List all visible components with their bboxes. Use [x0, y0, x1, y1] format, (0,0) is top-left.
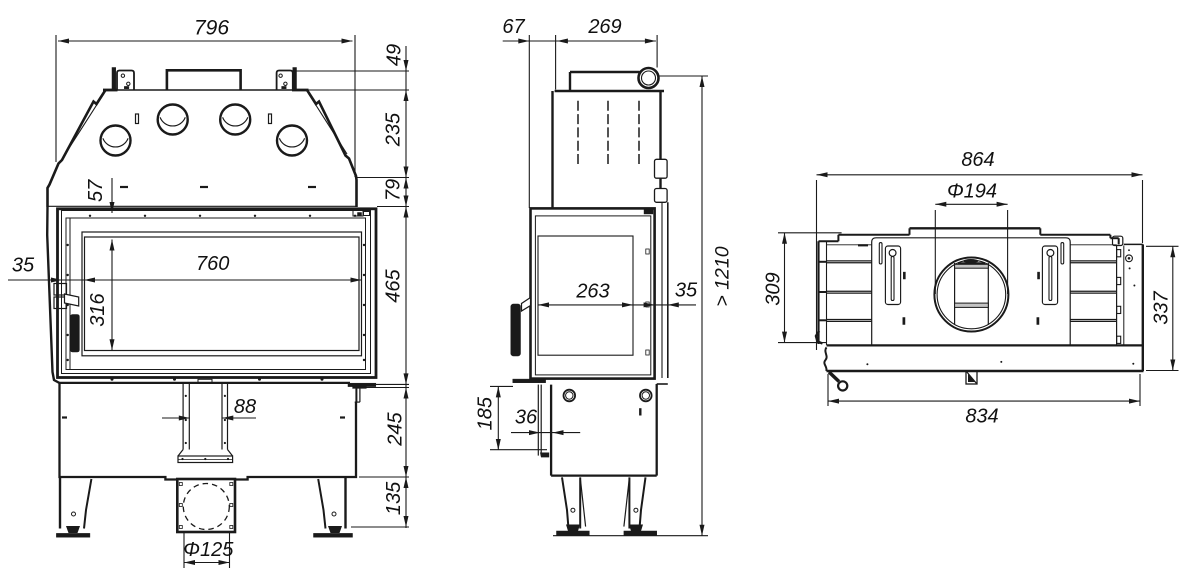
svg-text:79: 79	[382, 179, 404, 201]
svg-text:135: 135	[383, 481, 405, 515]
svg-text:> 1210: > 1210	[711, 246, 733, 306]
svg-text:834: 834	[965, 405, 998, 427]
svg-text:269: 269	[587, 16, 621, 38]
svg-text:57: 57	[85, 179, 107, 202]
svg-text:263: 263	[575, 280, 609, 302]
svg-text:Φ194: Φ194	[947, 180, 997, 202]
svg-text:760: 760	[196, 253, 229, 275]
svg-text:465: 465	[382, 268, 404, 302]
svg-text:337: 337	[1150, 290, 1172, 324]
svg-text:309: 309	[762, 272, 784, 305]
svg-text:88: 88	[234, 396, 256, 418]
svg-text:67: 67	[502, 16, 525, 38]
svg-text:316: 316	[87, 292, 109, 326]
svg-text:49: 49	[383, 44, 405, 66]
svg-text:796: 796	[194, 17, 229, 40]
svg-text:35: 35	[675, 279, 698, 301]
svg-text:35: 35	[12, 254, 35, 276]
svg-text:235: 235	[382, 112, 404, 147]
svg-text:36: 36	[515, 406, 538, 428]
svg-text:864: 864	[961, 149, 994, 171]
svg-text:245: 245	[384, 411, 406, 446]
svg-text:185: 185	[474, 396, 496, 430]
svg-text:Φ125: Φ125	[183, 539, 234, 561]
